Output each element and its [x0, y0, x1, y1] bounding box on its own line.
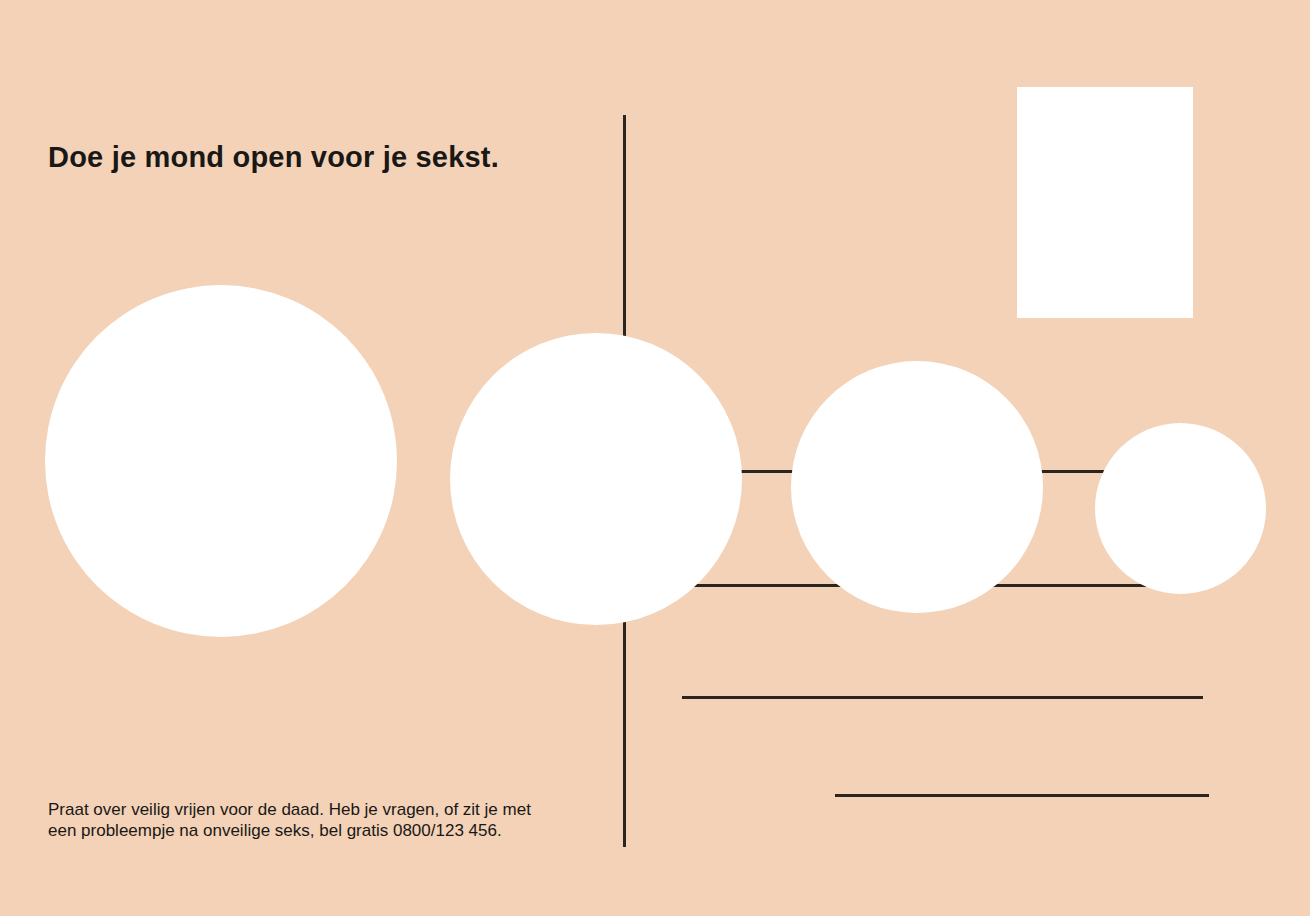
- stamp-placeholder: [1017, 87, 1193, 318]
- circle-graphic-medium: [450, 333, 742, 625]
- footer-text: Praat over veilig vrijen voor de daad. H…: [48, 799, 531, 841]
- circle-graphic-large: [45, 285, 397, 637]
- postcard: Doe je mond open voor je sekst. Praat ov…: [0, 0, 1310, 916]
- footer-line-2: een probleempje na onveilige seks, bel g…: [48, 820, 531, 841]
- circle-graphic-small: [791, 361, 1043, 613]
- headline: Doe je mond open voor je sekst.: [48, 141, 499, 174]
- address-line-4: [835, 794, 1209, 797]
- address-line-3: [682, 696, 1203, 699]
- footer-line-1: Praat over veilig vrijen voor de daad. H…: [48, 799, 531, 820]
- circle-graphic-smallest: [1095, 423, 1266, 594]
